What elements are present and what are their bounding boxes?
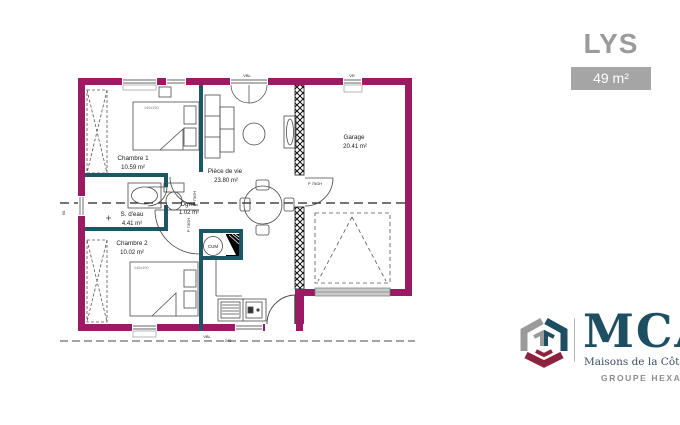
water-heater-label: CUM [208, 244, 218, 249]
window-label-living: VBL [243, 73, 251, 78]
room-label-chambre2: Chambre 2 [116, 240, 148, 247]
room-area-chambre2: 10.02 m² [120, 250, 144, 256]
room-label-chambre1: Chambre 1 [117, 155, 149, 162]
dimension-label-bottom: 240 [225, 338, 232, 343]
bed-chambre1 [133, 87, 199, 150]
mca-logo: MCA Maisons de la Côte Atlantique GROUPE… [518, 312, 680, 382]
dimension-label-left: 90 [61, 210, 66, 215]
area-badge: 49 m² [571, 67, 651, 90]
room-label-sdeau: S. d'eau [121, 211, 144, 218]
page: Chambre 1 10.59 m² S. d'eau 4.41 m² Dgmt… [0, 0, 680, 425]
title-block: LYS 49 m² [571, 30, 651, 90]
room-area-dgmt: 1.02 m² [179, 210, 199, 216]
logo-wordmark: MCA [583, 308, 680, 354]
garage-door [315, 288, 390, 296]
window-label-bottom: VBL [203, 334, 211, 339]
door-label-chambre2: P 73GH [186, 218, 191, 232]
wardrobes [87, 90, 107, 322]
plan-title: LYS [571, 30, 651, 58]
bed-chambre2 [130, 262, 198, 316]
room-label-piece-de-vie: Pièce de vie [208, 168, 243, 175]
door-label-chambre1: P 73GH [192, 191, 197, 205]
living-furniture [205, 95, 296, 235]
french-window-arcs [231, 85, 267, 103]
window-label-garage: VR [349, 73, 355, 78]
garage-door-swing [315, 213, 390, 283]
mca-cube-icon [518, 316, 570, 368]
garage-separation-wall [295, 85, 304, 289]
bed1-size-label: 140x190 [144, 106, 159, 110]
logo-group-name: GROUPE HEXAÔM [601, 373, 680, 383]
entrance-door [265, 295, 296, 331]
door-label-garage: P 75GH [308, 181, 322, 186]
kitchen-counter [216, 258, 266, 321]
logo-divider [574, 318, 575, 362]
room-area-sdeau: 4.41 m² [122, 221, 142, 227]
bed2-size-label: 140x190 [134, 266, 149, 270]
room-area-piece-de-vie: 23.80 m² [214, 178, 238, 184]
room-area-chambre1: 10.59 m² [121, 165, 145, 171]
room-area-garage: 20.41 m² [343, 144, 367, 150]
logo-subtitle: Maisons de la Côte Atlantique [584, 356, 680, 368]
room-label-garage: Garage [343, 134, 365, 141]
